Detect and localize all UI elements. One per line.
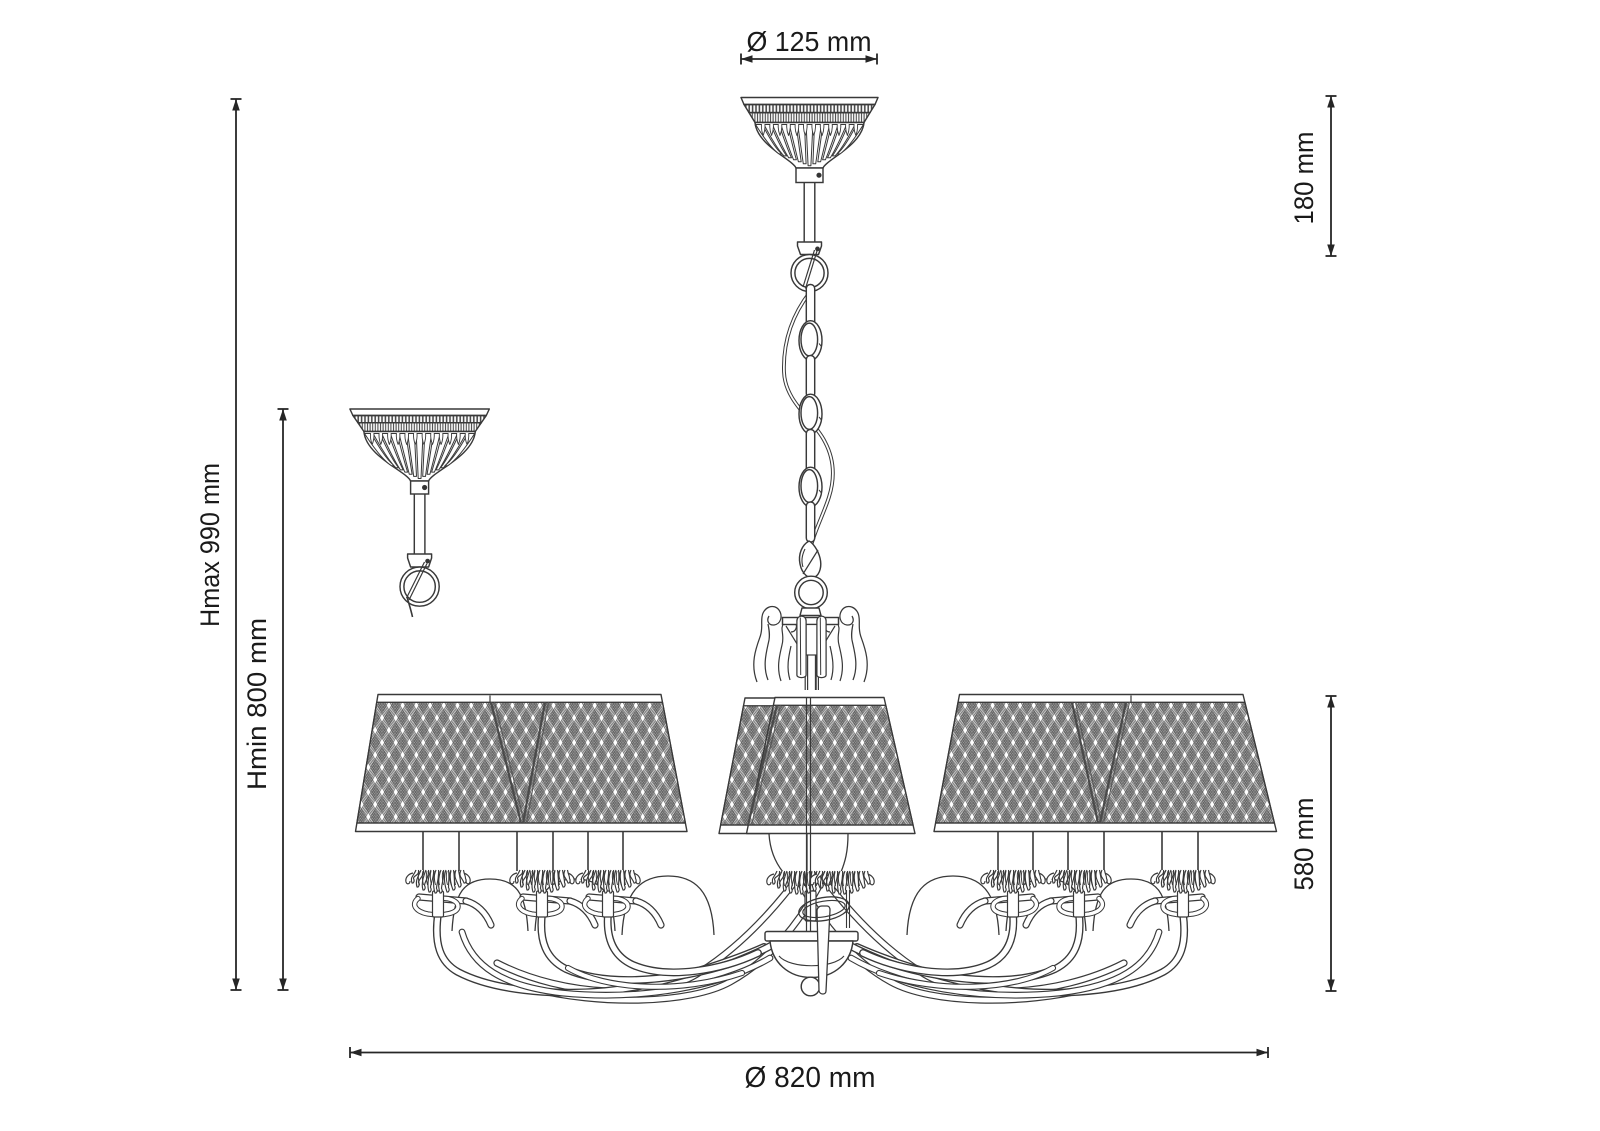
svg-text:Hmin 800 mm: Hmin 800 mm (242, 618, 272, 790)
svg-text:180 mm: 180 mm (1289, 132, 1319, 225)
svg-text:Ø 820 mm: Ø 820 mm (745, 1062, 876, 1094)
svg-text:580 mm: 580 mm (1289, 798, 1319, 891)
svg-text:Hmax 990 mm: Hmax 990 mm (195, 463, 225, 627)
svg-text:Ø 125 mm: Ø 125 mm (747, 26, 872, 57)
